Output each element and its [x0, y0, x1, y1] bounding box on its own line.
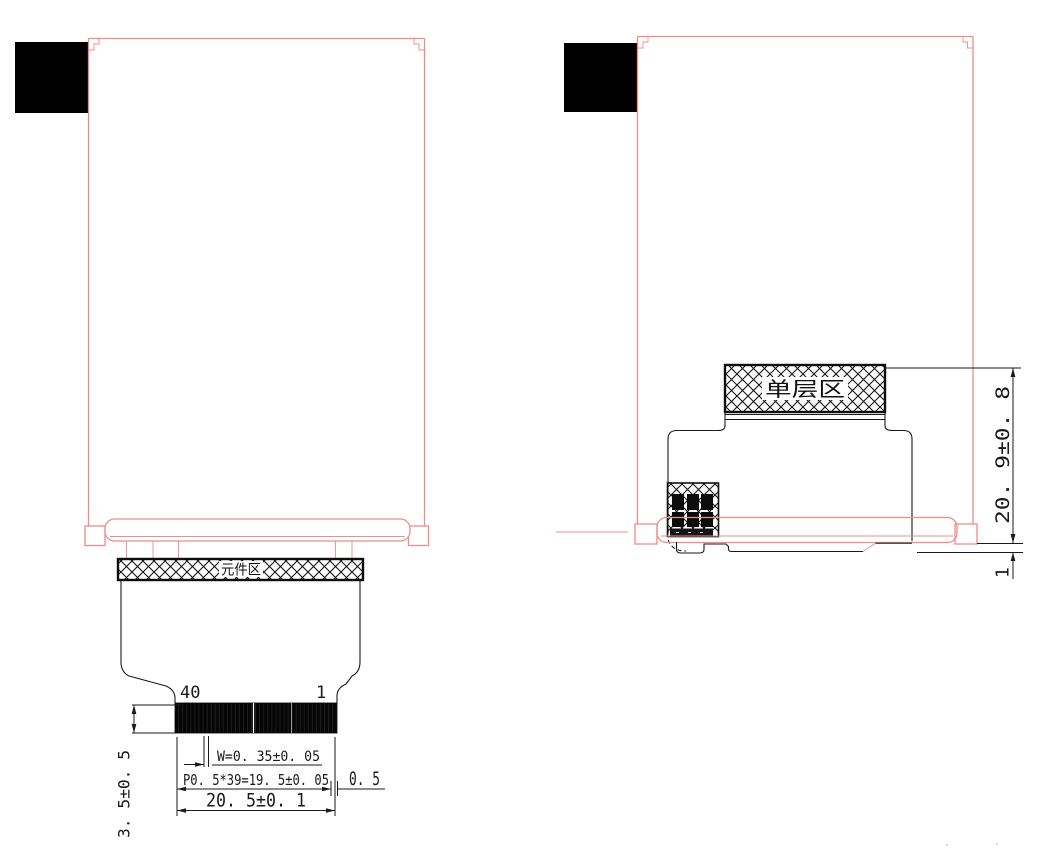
black-corner-mark: [15, 42, 88, 113]
dimension-pin-width: W=0. 35±0. 05: [184, 736, 322, 767]
technical-drawing-page: 元件区 40 1 3. 5±0. 5 W=0: [0, 0, 1042, 854]
corner-notch-right-side: [963, 37, 973, 49]
panel-outline: [89, 39, 425, 527]
bezel-tab-left-side: [635, 524, 657, 544]
dimension-bottom-clearance: 1: [917, 553, 1023, 580]
pin-40-label: 40: [180, 683, 200, 703]
front-view: 元件区 40 1 3. 5±0. 5 W=0: [15, 39, 429, 839]
dim-text-bottom-clearance: 1: [993, 567, 1014, 578]
component-area-label: 元件区: [221, 563, 261, 579]
bezel-tab-right-side: [955, 524, 977, 544]
dim-text-fpc-fold-height: 20. 9±0. 8: [992, 386, 1014, 524]
dim-text-connector-depth: 3. 5±0. 5: [115, 750, 134, 838]
dim-text-pin-width: W=0. 35±0. 05: [217, 749, 320, 765]
dimension-connector-depth: 3. 5±0. 5: [115, 705, 182, 838]
lcd-module-outline-drawing: 元件区 40 1 3. 5±0. 5 W=0: [0, 0, 1042, 854]
dim-text-connector-width: 20. 5±0. 1: [206, 790, 306, 812]
bezel-tab-left: [85, 526, 105, 546]
smd-components: [670, 494, 713, 536]
fpc-fold-edge: [863, 543, 876, 551]
folded-fpc: 单层区: [668, 365, 913, 551]
bottom-outline: [677, 542, 913, 553]
dim-text-pin-pitch: P0. 5*39=19. 5±0. 05: [183, 771, 329, 789]
gold-finger-connector: [175, 703, 337, 733]
dim-text-edge-margin: 0. 5: [349, 768, 380, 790]
corner-notch-right: [414, 39, 425, 51]
panel-outline-side: [638, 37, 974, 525]
print-specks: [946, 843, 998, 846]
side-view: 单层区: [556, 37, 1023, 580]
fpc-tail: 元件区 40 1: [118, 559, 363, 733]
black-corner-mark-side: [564, 43, 637, 112]
bezel-tab-right: [409, 526, 429, 546]
bottom-bezel: [85, 519, 429, 559]
pin-1-label: 1: [316, 683, 326, 703]
single-layer-area-label: 单层区: [765, 377, 845, 401]
corner-notch-left-side: [638, 37, 649, 49]
corner-notch-left: [89, 39, 100, 51]
bottom-bezel-side: [556, 518, 977, 545]
